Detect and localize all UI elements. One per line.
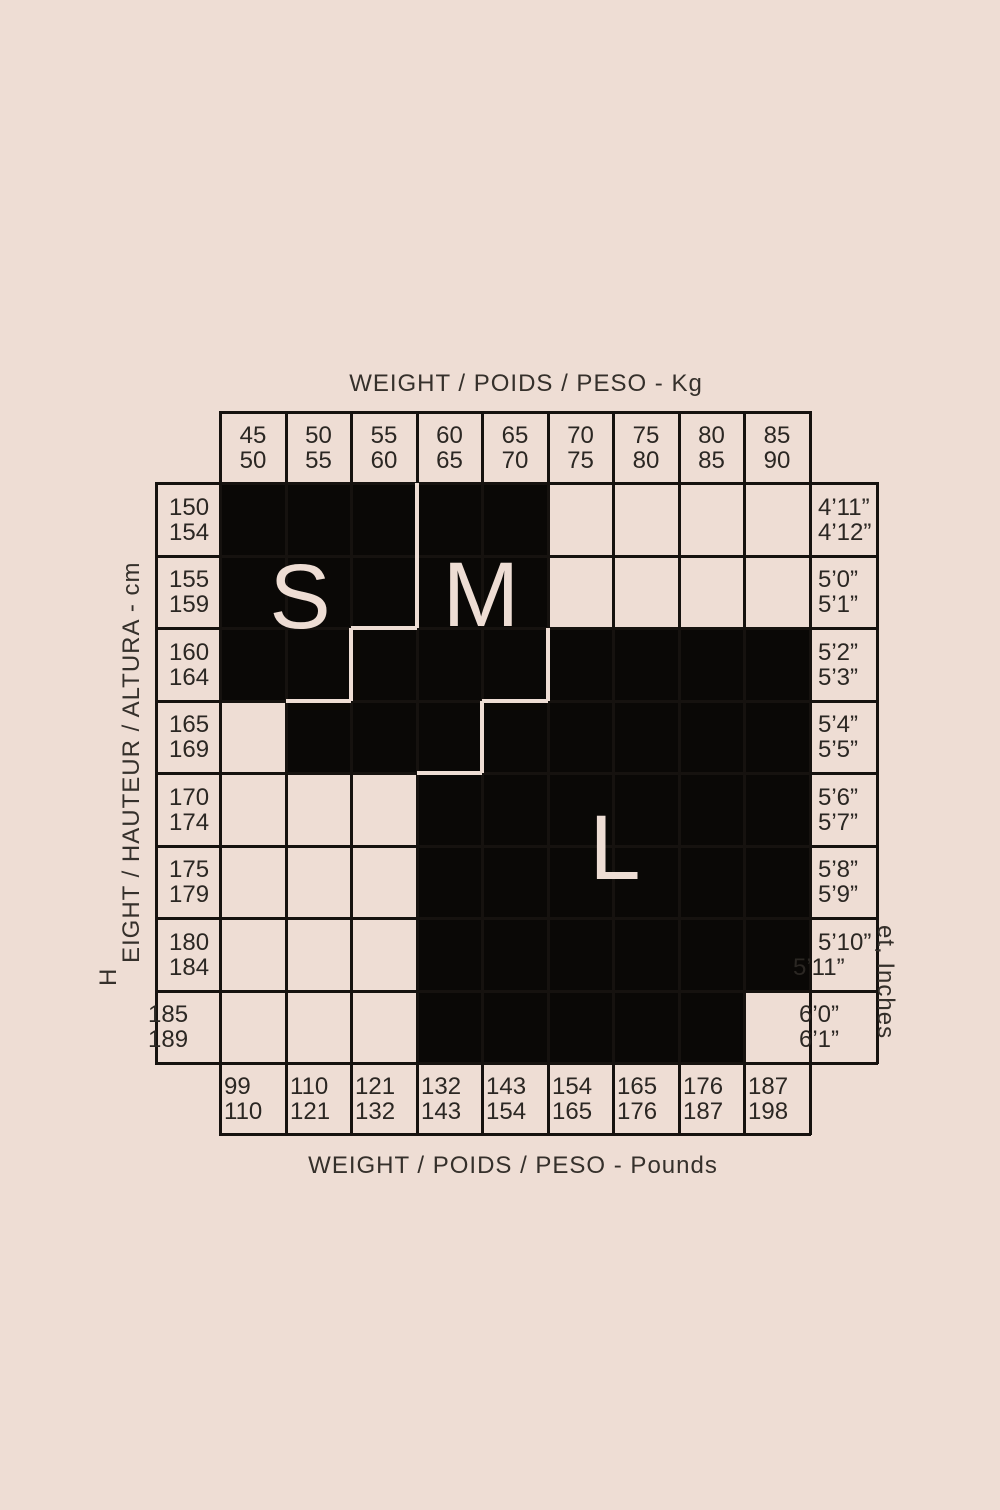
kg-value: 80 85 <box>698 423 725 473</box>
kg-value: 70 75 <box>567 423 594 473</box>
lb-value: 176 187 <box>683 1074 723 1124</box>
kg-value: 75 80 <box>633 423 660 473</box>
cm-value: 160 164 <box>169 640 209 690</box>
kg-header-cell: 65 70 <box>482 412 548 483</box>
region-separator <box>349 628 353 701</box>
feet-inches-axis-label: et, Inches <box>871 925 899 1039</box>
ft-label-cell: 5’4”5’5” <box>810 701 885 773</box>
cm-label-cell: 185 189 <box>156 991 233 1063</box>
size-l-letter: L <box>589 802 640 894</box>
height-axis-prefix: H <box>95 968 123 986</box>
kg-header-cell: 85 90 <box>744 412 810 483</box>
kg-header-cell: 70 75 <box>548 412 613 483</box>
ft-value: 5’7” <box>818 810 858 835</box>
lb-value: 110 121 <box>290 1074 330 1124</box>
lb-header-cell: 132 143 <box>417 1063 486 1134</box>
cm-label-cell: 155 159 <box>156 556 233 628</box>
cm-label-cell: 180 184 <box>156 918 233 991</box>
ft-label-cell: 5’6”5’7” <box>810 773 885 846</box>
cm-label-cell: 170 174 <box>156 773 233 846</box>
lb-value: 154 165 <box>552 1074 592 1124</box>
ft-value: 6’0” <box>799 1002 839 1027</box>
region-separator <box>286 699 351 703</box>
kg-value: 45 50 <box>240 423 267 473</box>
kg-header-cell: 80 85 <box>679 412 744 483</box>
weight-pounds-title: WEIGHT / POIDS / PESO - Pounds <box>308 1152 718 1180</box>
ft-label-cell: 5’2”5’3” <box>810 628 885 701</box>
cm-value: 175 179 <box>169 857 209 907</box>
cm-label-cell: 175 179 <box>156 846 233 918</box>
region-separator <box>415 483 419 628</box>
region-separator <box>417 771 482 775</box>
lb-value: 143 154 <box>486 1074 526 1124</box>
ft-value: 5’10” <box>818 930 871 955</box>
ft-label-cell: 5’8”5’9” <box>810 846 885 918</box>
lb-header-cell: 187 198 <box>744 1063 814 1134</box>
kg-value: 85 90 <box>764 423 791 473</box>
region-separator <box>546 628 550 701</box>
lb-header-cell: 176 187 <box>679 1063 748 1134</box>
cm-label-cell: 165 169 <box>156 701 233 773</box>
cm-value: 180 184 <box>169 930 209 980</box>
kg-value: 50 55 <box>305 423 332 473</box>
size-chart: WEIGHT / POIDS / PESO - Kg WEIGHT / POID… <box>0 0 1000 1510</box>
kg-header-cell: 60 65 <box>417 412 482 483</box>
ft-value: 4’11” <box>818 495 870 520</box>
lb-header-cell: 143 154 <box>482 1063 552 1134</box>
size-m-letter: M <box>443 549 520 641</box>
cm-value: 165 169 <box>169 712 209 762</box>
ft-value: 5’4” <box>818 712 858 737</box>
cm-label-cell: 150 154 <box>156 483 233 556</box>
ft-value: 5’6” <box>818 785 858 810</box>
kg-value: 55 60 <box>371 423 398 473</box>
cm-value: 185 189 <box>148 1002 188 1052</box>
lb-value: 121 132 <box>355 1074 395 1124</box>
ft-label-cell: 5’0”5’1” <box>810 556 885 628</box>
lb-header-cell: 165 176 <box>613 1063 683 1134</box>
cm-value: 170 174 <box>169 785 209 835</box>
ft-value: 6’1” <box>799 1027 839 1052</box>
ft-value: 5’8” <box>818 857 858 882</box>
kg-header-cell: 75 80 <box>613 412 679 483</box>
ft-value: 5’11” <box>793 955 845 980</box>
lb-value: 99 110 <box>224 1074 262 1124</box>
height-axis-label: EIGHT / HAUTEUR / ALTURA - cm <box>118 562 146 964</box>
region-separator <box>480 701 484 773</box>
ft-value: 5’3” <box>818 665 858 690</box>
cm-value: 155 159 <box>169 567 209 617</box>
kg-header-cell: 45 50 <box>220 412 286 483</box>
grid-line <box>155 845 878 848</box>
kg-header-cell: 50 55 <box>286 412 351 483</box>
kg-value: 60 65 <box>436 423 463 473</box>
region-separator <box>482 699 548 703</box>
lb-value: 187 198 <box>748 1074 788 1124</box>
grid-line <box>155 917 878 920</box>
grid-line <box>155 772 878 775</box>
ft-value: 5’2” <box>818 640 858 665</box>
lb-value: 132 143 <box>421 1074 461 1124</box>
kg-value: 65 70 <box>502 423 529 473</box>
kg-header-cell: 55 60 <box>351 412 417 483</box>
weight-kg-title: WEIGHT / POIDS / PESO - Kg <box>349 370 703 398</box>
lb-header-cell: 99 110 <box>220 1063 290 1134</box>
cm-label-cell: 160 164 <box>156 628 233 701</box>
ft-value: 5’1” <box>818 592 858 617</box>
lb-header-cell: 110 121 <box>286 1063 355 1134</box>
lb-header-cell: 121 132 <box>351 1063 421 1134</box>
region-separator <box>351 626 417 630</box>
ft-value: 5’5” <box>818 737 858 762</box>
ft-value: 5’9” <box>818 882 858 907</box>
size-s-letter: S <box>269 551 330 643</box>
lb-header-cell: 154 165 <box>548 1063 617 1134</box>
ft-label-cell: 4’11”4’12” <box>810 483 885 556</box>
cm-value: 150 154 <box>169 495 209 545</box>
ft-value: 4’12” <box>818 520 871 545</box>
lb-value: 165 176 <box>617 1074 657 1124</box>
grid-line <box>155 990 878 993</box>
ft-value: 5’0” <box>818 567 858 592</box>
